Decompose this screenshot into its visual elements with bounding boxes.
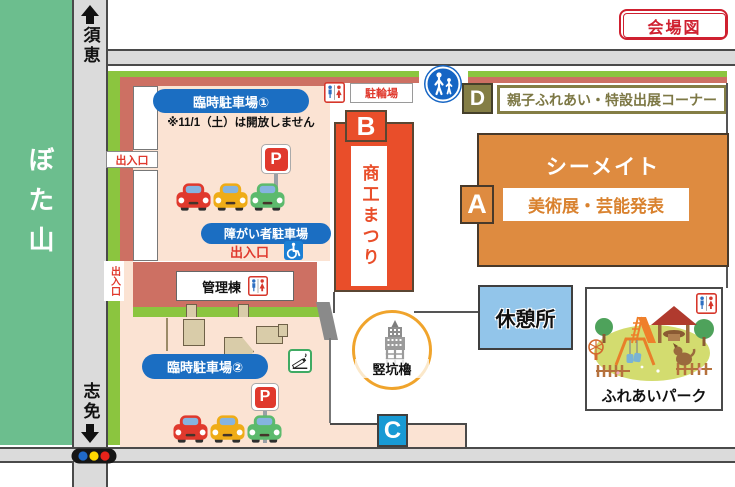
badge-c: C xyxy=(377,414,408,447)
green-walk-strip xyxy=(133,307,330,317)
rest-area-text: 休憩所 xyxy=(496,303,556,332)
boundary-line-vert xyxy=(333,292,335,313)
corner-d-text: 親子ふれあい・特設出展コーナー xyxy=(507,90,717,110)
building-small-1 xyxy=(183,319,205,346)
seamate-building: シーメイト 美術展・芸能発表 xyxy=(477,133,729,267)
corner-d-box: 親子ふれあい・特設出展コーナー xyxy=(497,85,727,114)
parking1-p-letter: P xyxy=(270,149,281,169)
parking2-name-pill: 臨時駐車場② xyxy=(142,354,268,379)
seamate-name: シーメイト xyxy=(479,151,727,181)
fureai-park-label: ふれあいパーク xyxy=(587,385,721,406)
direction-north: 須恵 xyxy=(72,5,108,66)
venue-title-inner: 会場図 xyxy=(623,13,726,38)
direction-north-label: 須恵 xyxy=(78,26,103,66)
parking2-right-edge xyxy=(329,338,331,423)
side-gate-text: 出入口 xyxy=(107,266,122,296)
venue-title-badge: 会場図 xyxy=(619,9,728,40)
rest-area-box: 休憩所 xyxy=(478,285,573,350)
venue-map: ぼた山 須恵 志免 会場図 出入口 臨 xyxy=(0,0,735,487)
car-icon-yellow-2 xyxy=(210,414,245,449)
hill-label: ぼた山 xyxy=(22,146,59,266)
parking1-p-sign: P xyxy=(261,144,291,174)
seamate-event-text: 美術展・芸能発表 xyxy=(528,192,664,217)
seamate-event-box: 美術展・芸能発表 xyxy=(503,188,689,221)
border-salmon-left xyxy=(120,86,133,261)
border-green-left xyxy=(108,71,120,445)
restroom-icon-north xyxy=(324,82,345,108)
restroom-icon xyxy=(248,276,268,296)
venue-title-text: 会場図 xyxy=(647,14,701,38)
parking2-p-inner: P xyxy=(255,387,276,408)
badge-b: B xyxy=(345,110,387,142)
traffic-light-icon xyxy=(71,448,117,469)
bicycle-parking-text: 駐輪場 xyxy=(365,85,398,101)
festival-building: 商工まつり xyxy=(334,122,414,292)
badge-d: D xyxy=(462,83,493,114)
wheelchair-icon xyxy=(284,241,303,260)
building-small-4 xyxy=(278,324,288,337)
smoking-area-icon xyxy=(288,349,312,373)
tower-circle: 竪坑櫓 xyxy=(352,310,432,390)
fureai-park-box: ふれあいパーク xyxy=(585,287,723,411)
arrow-up-icon xyxy=(81,5,99,16)
car-icon-red xyxy=(176,182,211,217)
playground-illustration xyxy=(588,301,720,392)
car-icon-red-2 xyxy=(173,414,208,449)
border-salmon-top-left xyxy=(108,77,330,86)
road-north xyxy=(108,49,735,66)
arrow-up-stem xyxy=(86,16,94,24)
side-gate-label: 出入口 xyxy=(104,261,124,301)
festival-name-strip: 商工まつり xyxy=(351,146,387,286)
direction-south-label: 志免 xyxy=(78,382,103,422)
badge-a: A xyxy=(460,185,494,224)
admin-box: 管理棟 xyxy=(176,271,294,301)
parking1-gate-text: 出入口 xyxy=(116,152,149,168)
festival-name-text: 商工まつり xyxy=(357,164,382,269)
arrow-down-icon xyxy=(81,432,99,443)
car-icon-green-2 xyxy=(247,414,282,449)
arrow-down-stem xyxy=(86,424,94,432)
tower-label: 竪坑櫓 xyxy=(355,359,429,378)
bicycle-parking-box: 駐輪場 xyxy=(350,83,413,103)
parking1-gate-label: 出入口 xyxy=(106,151,158,168)
car-icon-green xyxy=(250,182,285,217)
parking1-note: ※11/1（土）は開放しません xyxy=(150,114,332,130)
parking1-driveway-lower xyxy=(133,170,158,261)
disabled-parking-pill: 障がい者駐車場 xyxy=(201,223,331,244)
parking2-p-letter: P xyxy=(260,388,271,406)
pedestrian-sign-icon xyxy=(423,64,463,109)
parking2-p-sign: P xyxy=(251,383,279,411)
admin-label: 管理棟 xyxy=(202,277,241,296)
parking1-name-pill: 臨時駐車場① xyxy=(153,89,309,113)
direction-south: 志免 xyxy=(72,382,108,443)
boundary-line-horiz xyxy=(414,311,478,313)
parking2-wall xyxy=(166,318,168,351)
car-icon-yellow xyxy=(213,182,248,217)
disabled-gate-label: 出入口 xyxy=(230,242,269,261)
parking1-p-inner: P xyxy=(265,148,288,171)
